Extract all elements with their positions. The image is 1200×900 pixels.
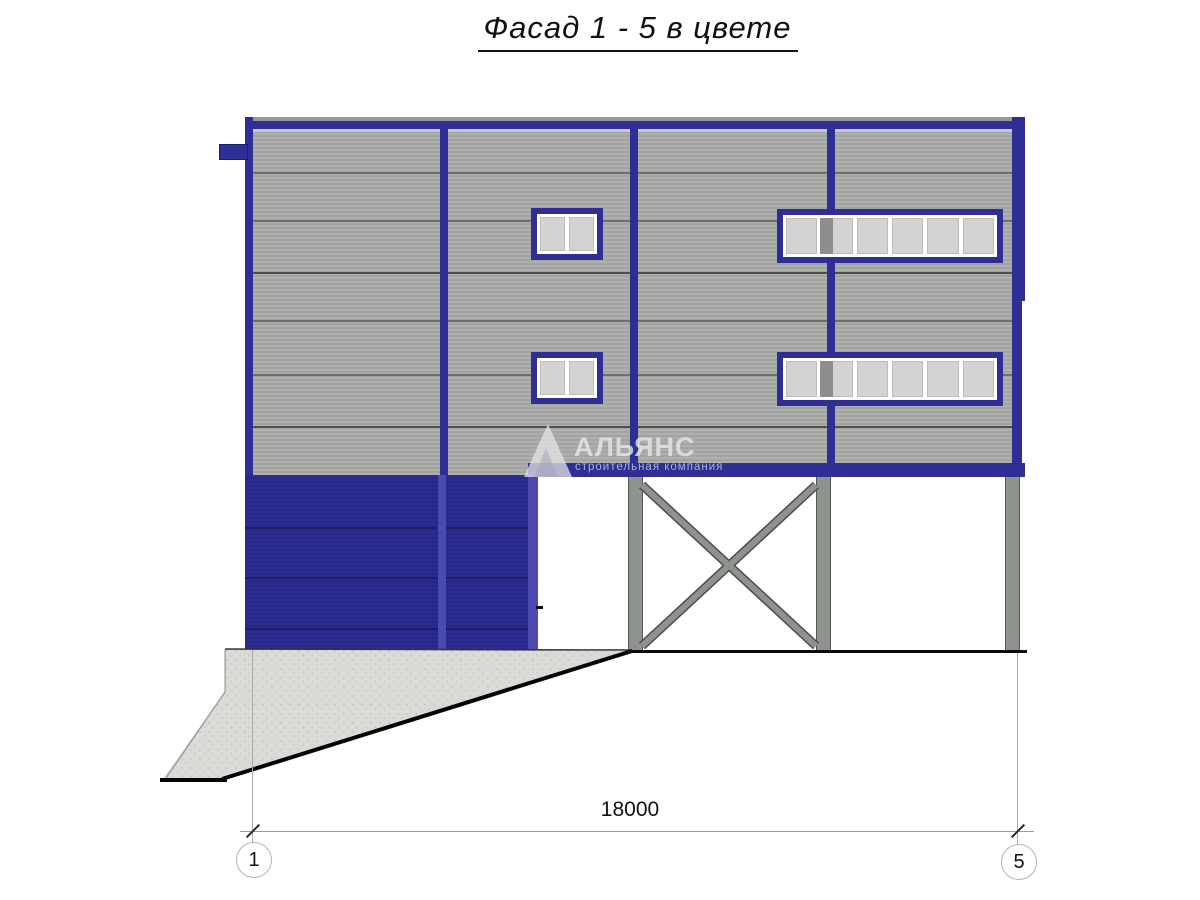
facade-drawing: Фасад 1 - 5 в цвете <box>0 0 1200 900</box>
dimension-line <box>240 831 1034 832</box>
ground-line <box>628 650 1027 653</box>
ramp-svg <box>0 0 1200 900</box>
concrete-ramp <box>163 649 630 779</box>
axis-bubble-1: 1 <box>236 842 272 878</box>
extension-line-axis5 <box>1017 653 1018 849</box>
extension-line-axis1 <box>252 650 253 846</box>
axis-bubble-5: 5 <box>1001 844 1037 880</box>
dimension-value: 18000 <box>560 798 700 822</box>
ramp-top-edge <box>225 649 632 650</box>
